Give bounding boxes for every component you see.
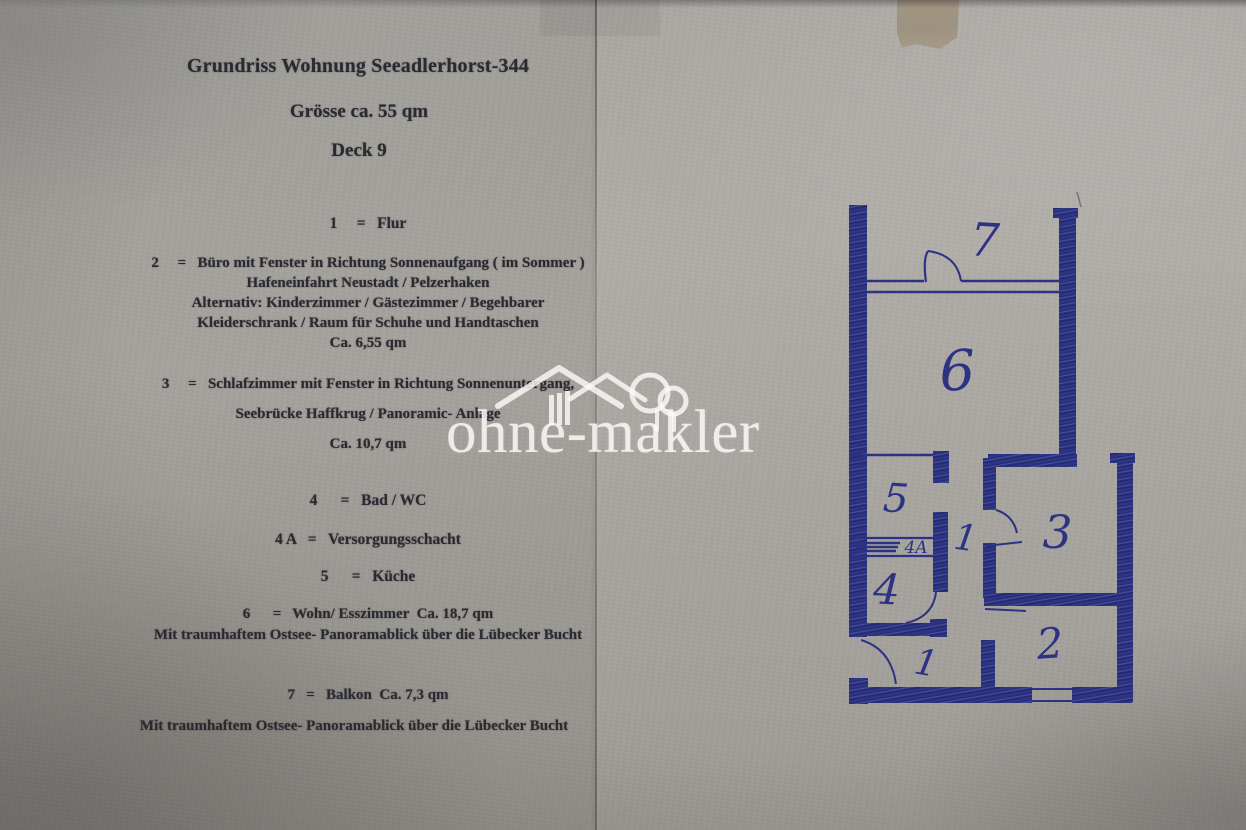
legend-line: 7 = Balkon Ca. 7,3 qm xyxy=(68,687,668,704)
plan-walls xyxy=(849,192,1135,704)
tape-patch xyxy=(897,0,959,49)
legend-line: Ca. 10,7 qm xyxy=(68,429,668,459)
legend-entry-flur: 1 = Flur xyxy=(68,215,668,233)
legend-line: Alternativ: Kinderzimmer / Gästezimmer /… xyxy=(68,293,668,313)
legend-line: Mit traumhaftem Ostsee- Panoramablick üb… xyxy=(54,718,654,735)
room-number-hall-entry: 1 xyxy=(911,641,941,685)
legend-line: 3 = Schlafzimmer mit Fenster in Richtung… xyxy=(68,369,668,399)
legend-line: Seebrücke Haffkrug / Panoramic- Anlage xyxy=(68,399,668,429)
floor-plan-drawing: 7 6 5 4A 1 4 3 2 1 xyxy=(838,190,1150,715)
legend-line: Hafeneinfahrt Neustadt / Pelzerhaken xyxy=(68,273,668,293)
size-line: Grösse ca. 55 qm xyxy=(59,101,659,123)
room-number-balcony: 7 xyxy=(969,212,1002,267)
photographed-floorplan-document: Grundriss Wohnung Seeadlerhorst-344 Grös… xyxy=(0,0,1246,830)
legend-column: Grundriss Wohnung Seeadlerhorst-344 Grös… xyxy=(68,0,668,830)
room-number-living: 6 xyxy=(938,338,976,404)
document-title: Grundriss Wohnung Seeadlerhorst-344 xyxy=(58,55,658,78)
room-number-office: 2 xyxy=(1034,618,1065,669)
legend-entry-buero: 2 = Büro mit Fenster in Richtung Sonnena… xyxy=(68,253,668,353)
legend-entry-schlafzimmer: 3 = Schlafzimmer mit Fenster in Richtung… xyxy=(68,369,668,459)
room-number-bath: 4 xyxy=(871,564,901,614)
legend-line: 1 = Flur xyxy=(68,215,668,233)
legend-line: Kleiderschrank / Raum für Schuhe und Han… xyxy=(68,313,668,333)
room-number-kitchen: 5 xyxy=(882,475,911,523)
legend-line: Ca. 6,55 qm xyxy=(68,333,668,353)
legend-entry-kueche: 5 = Küche xyxy=(68,568,668,586)
legend-entry-balkon: 7 = Balkon Ca. 7,3 qm Mit traumhaftem Os… xyxy=(68,687,668,735)
room-number-bedroom: 3 xyxy=(1042,505,1073,560)
legend-entry-bad: 4 = Bad / WC xyxy=(68,492,668,510)
room-number-shaft: 4A xyxy=(903,538,927,558)
legend-entry-schacht: 4 A = Versorgungsschacht xyxy=(68,531,668,549)
deck-line: Deck 9 xyxy=(59,140,659,162)
legend-line: 2 = Büro mit Fenster in Richtung Sonnena… xyxy=(68,253,668,273)
legend-line: 6 = Wohn/ Esszimmer Ca. 18,7 qm xyxy=(68,604,668,625)
legend-entry-wohnzimmer: 6 = Wohn/ Esszimmer Ca. 18,7 qm Mit trau… xyxy=(68,604,668,646)
legend-line: Mit traumhaftem Ostsee- Panoramablick üb… xyxy=(68,625,668,646)
plan-room-numbers: 7 6 5 4A 1 4 3 2 1 xyxy=(871,212,1073,686)
room-number-hall-mid: 1 xyxy=(951,517,979,561)
